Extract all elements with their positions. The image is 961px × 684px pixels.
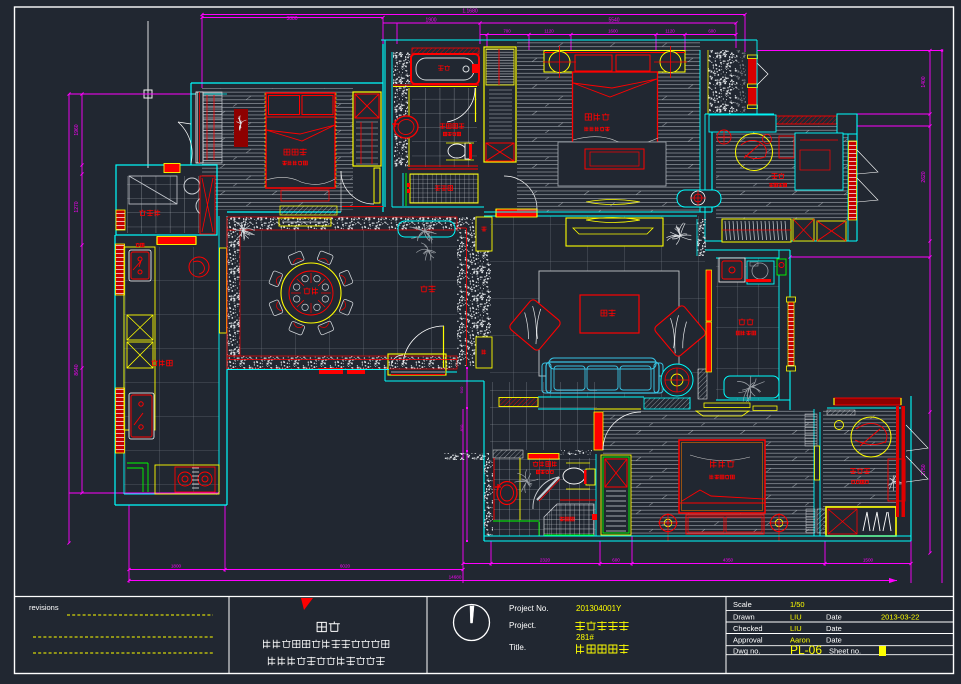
svg-text:2320: 2320: [540, 558, 551, 563]
svg-text:2750: 2750: [921, 464, 927, 475]
svg-text:1/50: 1/50: [790, 600, 805, 609]
svg-text:1400: 1400: [921, 76, 927, 87]
svg-text:600: 600: [612, 558, 620, 563]
svg-text:Title.: Title.: [509, 643, 526, 652]
svg-text:14680: 14680: [449, 575, 462, 580]
svg-text:2013-03-22: 2013-03-22: [881, 613, 919, 622]
svg-text:810: 810: [459, 424, 464, 431]
svg-text:8640: 8640: [74, 364, 80, 375]
svg-text:3880: 3880: [286, 16, 297, 22]
svg-text:1270: 1270: [74, 201, 80, 212]
svg-text:281#: 281#: [576, 633, 594, 642]
svg-text:PL-06: PL-06: [790, 643, 822, 657]
svg-text:LIU: LIU: [790, 613, 802, 622]
svg-text:1800: 1800: [171, 564, 182, 569]
svg-text:Sheet no.: Sheet no.: [829, 647, 861, 656]
svg-text:1960: 1960: [74, 124, 80, 135]
svg-text:1.1680: 1.1680: [462, 9, 478, 15]
svg-text:6020: 6020: [340, 564, 351, 569]
svg-text:Checked: Checked: [733, 624, 763, 633]
svg-text:Date: Date: [826, 613, 842, 622]
svg-text:LIU: LIU: [790, 624, 802, 633]
svg-text:910: 910: [459, 386, 464, 393]
svg-text:Dwg no.: Dwg no.: [733, 647, 761, 656]
svg-text:1500: 1500: [863, 558, 874, 563]
svg-text:Project.: Project.: [509, 621, 536, 630]
svg-text:201304001Y: 201304001Y: [576, 604, 622, 613]
svg-text:700: 700: [503, 29, 511, 34]
svg-text:Scale: Scale: [733, 600, 752, 609]
svg-text:1600: 1600: [608, 29, 618, 34]
svg-text:4350: 4350: [723, 558, 734, 563]
svg-text:Drawn: Drawn: [733, 613, 755, 622]
svg-text:Date: Date: [826, 636, 842, 645]
svg-text:1900: 1900: [425, 18, 436, 24]
svg-text:Date: Date: [826, 624, 842, 633]
svg-text:600: 600: [708, 29, 716, 34]
svg-text:1120: 1120: [665, 29, 675, 34]
svg-text:Approval: Approval: [733, 636, 763, 645]
svg-text:2620: 2620: [921, 171, 927, 182]
svg-text:5540: 5540: [608, 18, 619, 24]
svg-text:1120: 1120: [544, 29, 554, 34]
svg-text:Project No.: Project No.: [509, 604, 549, 613]
svg-text:revisions: revisions: [29, 603, 59, 612]
